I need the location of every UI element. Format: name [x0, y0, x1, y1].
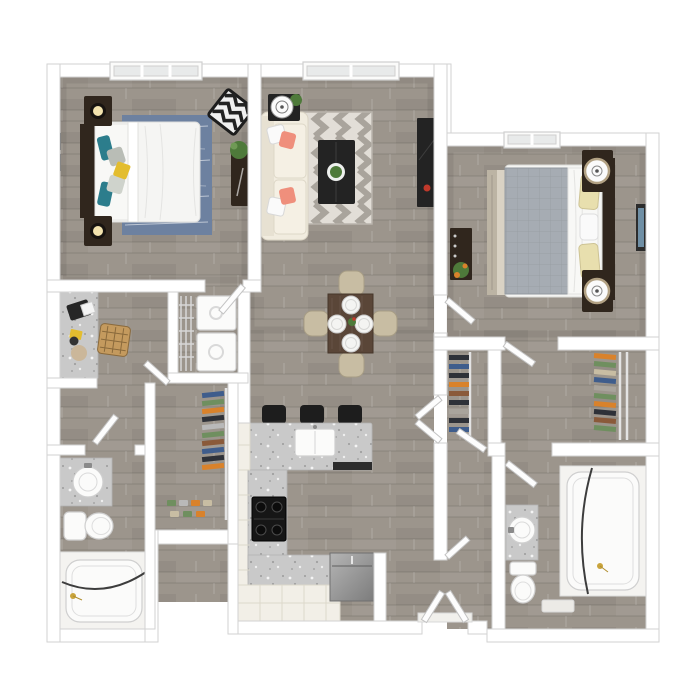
coffee-table [318, 140, 355, 204]
nightstand-bottom [84, 216, 112, 246]
floor-plan-canvas [0, 0, 697, 697]
decor-vase [70, 337, 79, 346]
plant-icon [330, 166, 342, 178]
nightstand-bottom [582, 270, 613, 312]
sofa [261, 112, 308, 240]
sink-icon [73, 467, 103, 497]
bath-mat [542, 600, 574, 612]
pillow [580, 214, 598, 240]
faucet-icon [313, 425, 317, 429]
faucet-icon [84, 463, 92, 468]
island [248, 423, 372, 470]
table-lamp-icon [93, 226, 103, 236]
bar-stool [338, 405, 362, 424]
nightstand-top [84, 96, 112, 126]
tv-console [417, 118, 436, 207]
hanging-clothes-dark [449, 355, 469, 432]
bathtub [560, 466, 646, 596]
bed-1 [95, 122, 200, 222]
toilet-icon [510, 562, 536, 603]
refrigerator [330, 553, 374, 601]
range-stove [252, 497, 286, 541]
bar-stool [300, 405, 324, 424]
faucet-icon [508, 527, 514, 533]
window-bedroom-2 [504, 132, 560, 148]
bathtub [60, 552, 148, 629]
rattan-chair [97, 323, 131, 357]
wall-art [636, 204, 646, 251]
floor-plan [0, 0, 697, 697]
dining-chair [304, 311, 329, 336]
dining-chair [372, 311, 397, 336]
bar-stool [262, 405, 286, 424]
table-lamp-icon [93, 106, 103, 116]
decor-bowl [71, 345, 87, 361]
headboard [80, 124, 95, 218]
dining-chair [339, 271, 364, 296]
washer [197, 333, 236, 371]
island-sink [295, 425, 335, 456]
side-table-lamp [268, 94, 302, 121]
nightstand-top [582, 150, 613, 192]
dresser [450, 228, 472, 280]
window-bedroom-1 [110, 62, 202, 80]
dining-chair [339, 352, 364, 377]
window-living-room [303, 62, 399, 80]
bar-stools [262, 405, 362, 424]
wire-shelving [179, 296, 194, 371]
